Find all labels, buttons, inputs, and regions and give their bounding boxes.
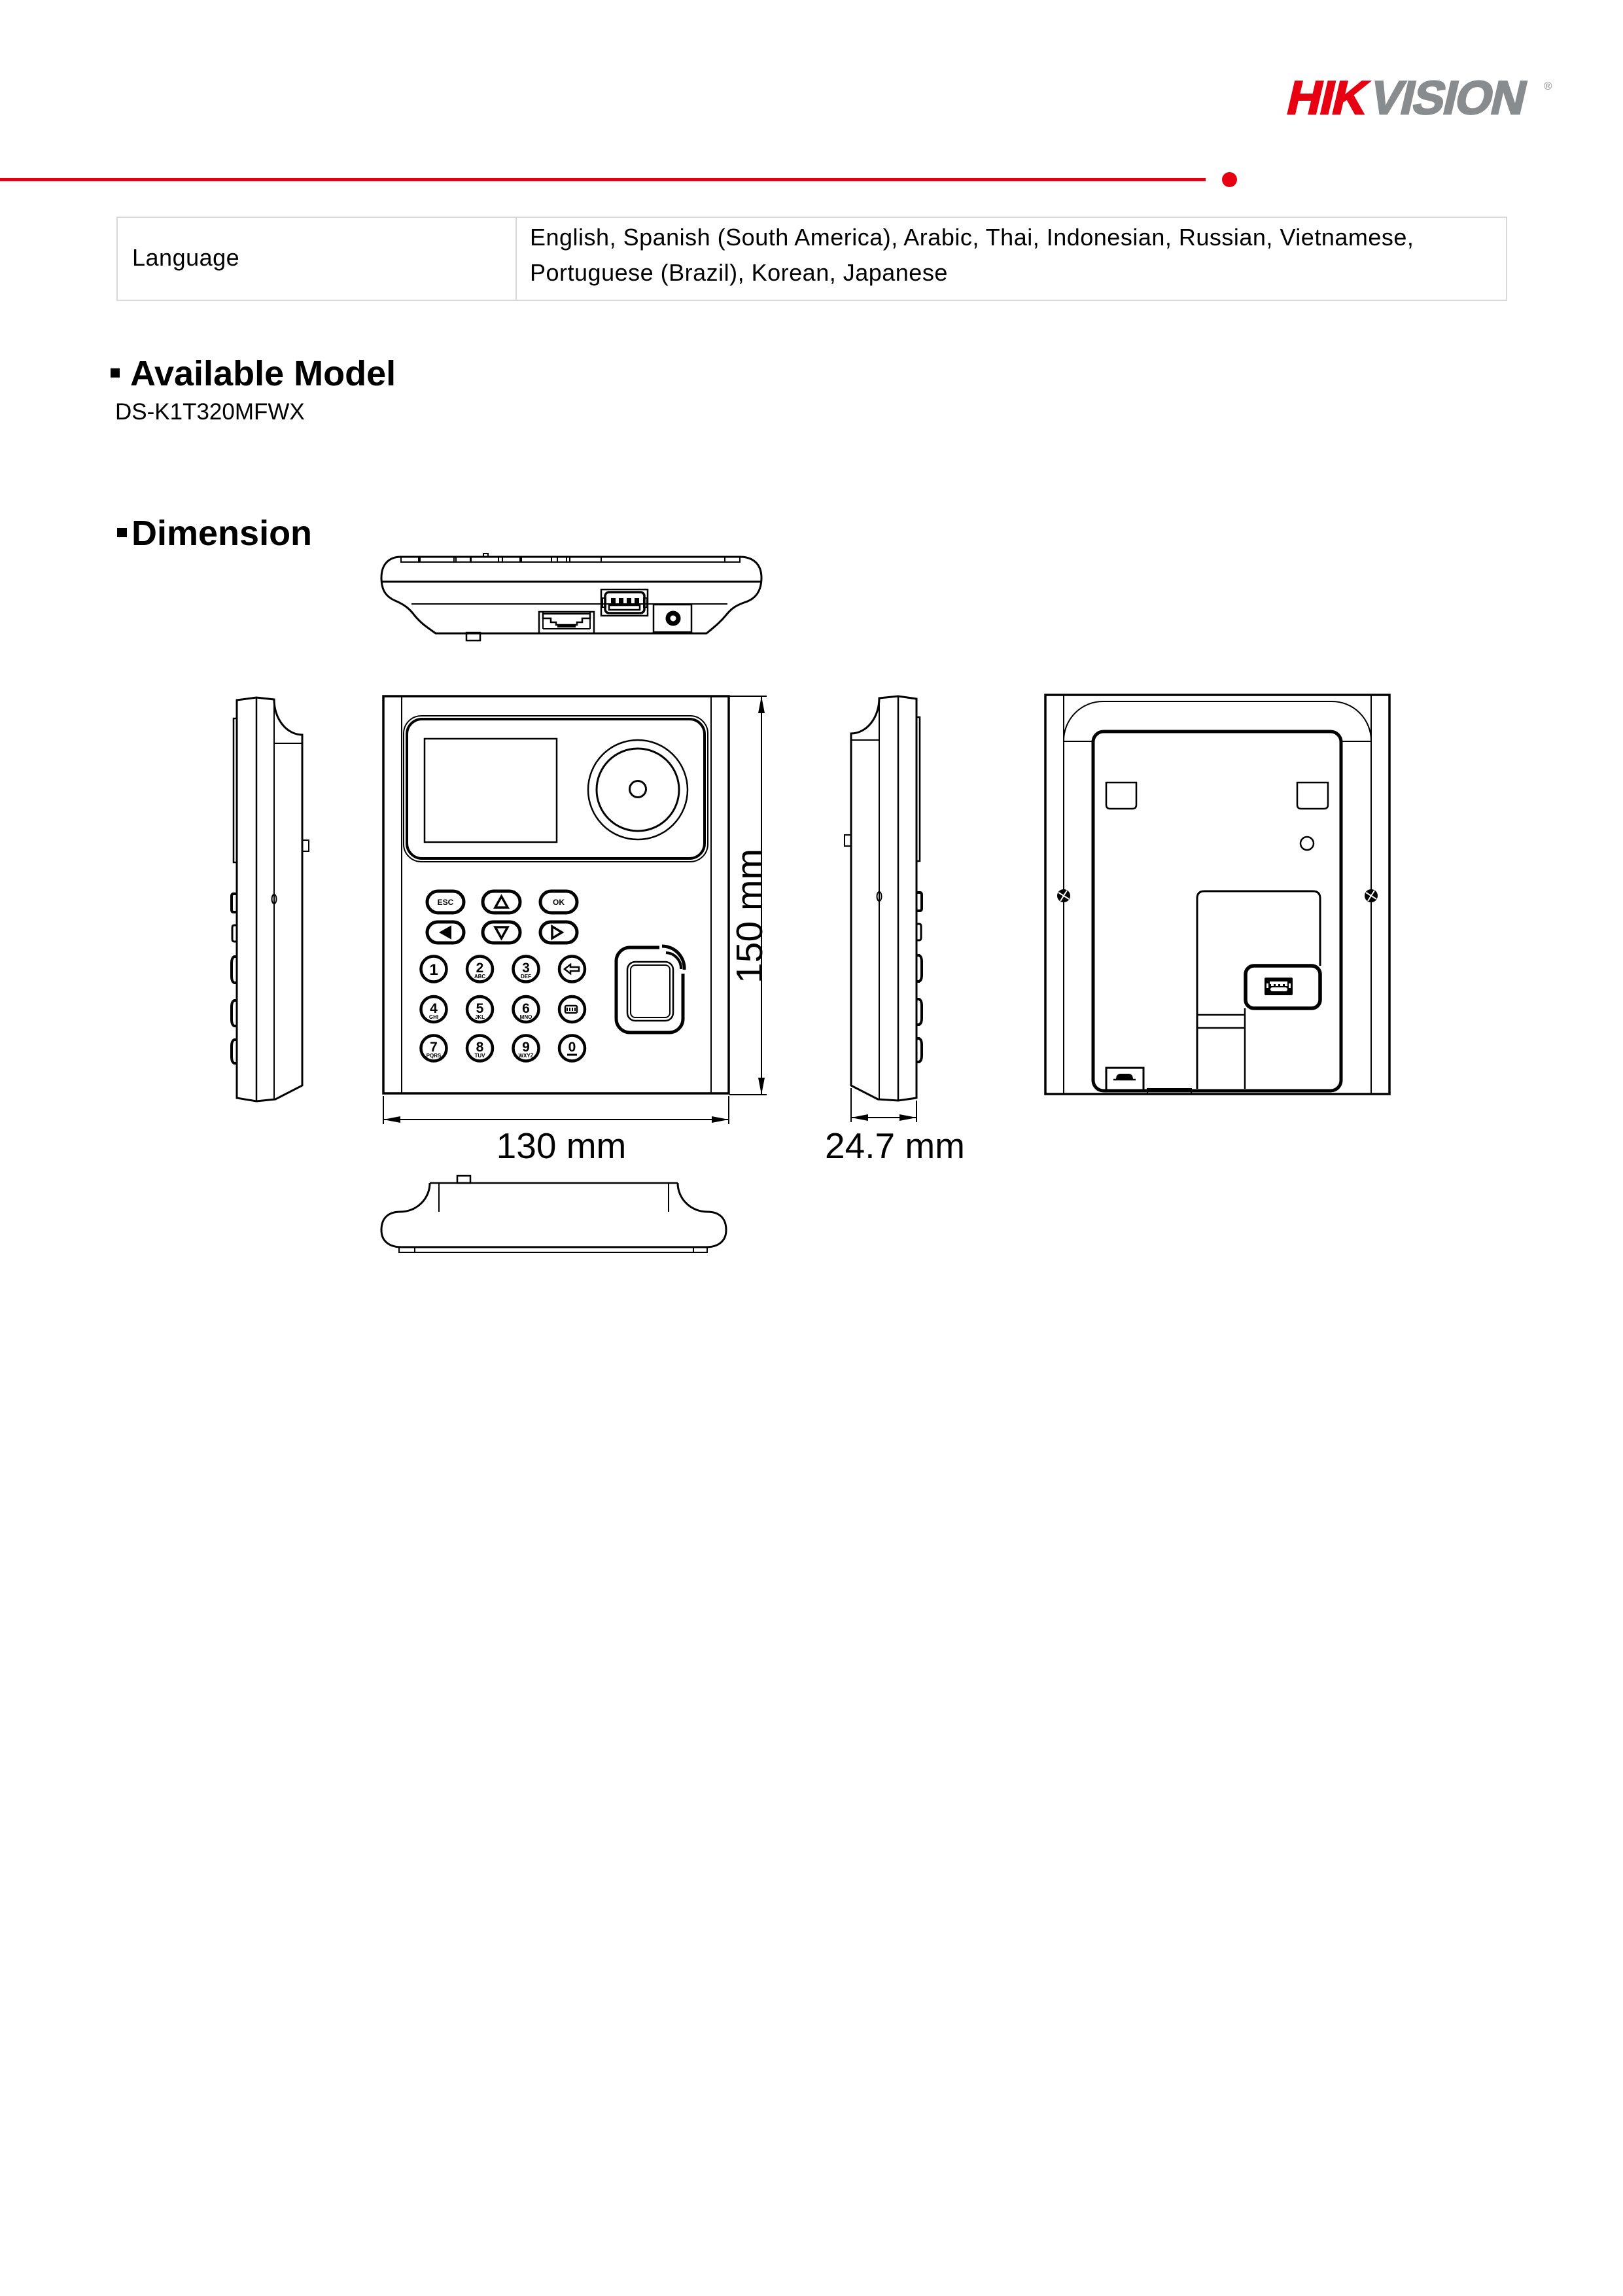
svg-text:OK: OK bbox=[553, 898, 565, 907]
svg-text:PQRS: PQRS bbox=[427, 1053, 442, 1059]
svg-text:GHI: GHI bbox=[429, 1014, 438, 1020]
svg-text:ESC: ESC bbox=[438, 898, 454, 907]
svg-text:1: 1 bbox=[429, 961, 438, 979]
svg-text:24.7 mm: 24.7 mm bbox=[825, 1125, 965, 1166]
svg-text:WXYZ: WXYZ bbox=[518, 1053, 533, 1059]
svg-text:DEF: DEF bbox=[521, 974, 531, 980]
svg-text:0: 0 bbox=[568, 1040, 576, 1055]
svg-text:MNO: MNO bbox=[520, 1014, 532, 1020]
svg-text:130 mm: 130 mm bbox=[497, 1125, 627, 1166]
svg-text:ABC: ABC bbox=[474, 974, 486, 980]
svg-text:TUV: TUV bbox=[475, 1053, 486, 1059]
svg-text:JKL: JKL bbox=[475, 1014, 485, 1020]
svg-text:150 mm: 150 mm bbox=[729, 849, 771, 983]
